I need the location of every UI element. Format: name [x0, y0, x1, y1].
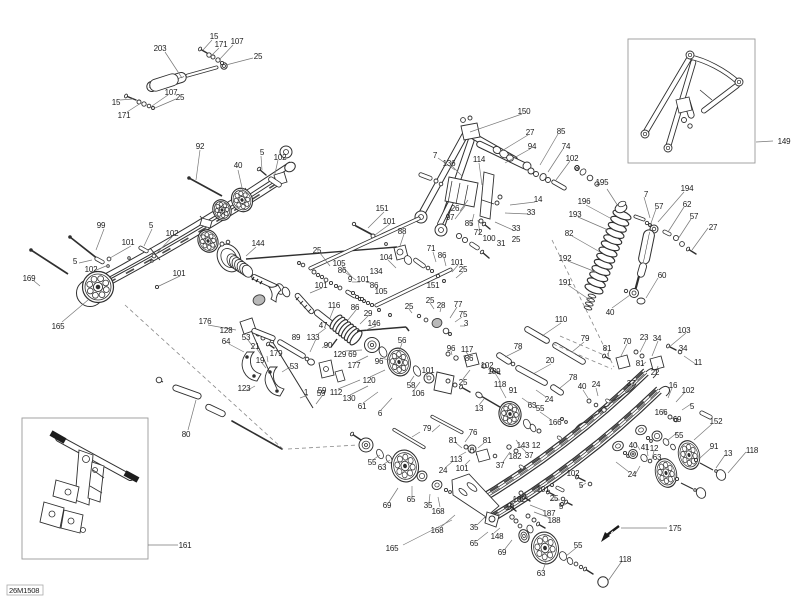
- svg-text:25: 25: [550, 494, 559, 503]
- svg-text:118: 118: [619, 555, 632, 564]
- svg-text:22: 22: [651, 368, 660, 377]
- svg-text:79: 79: [423, 424, 432, 433]
- svg-text:25: 25: [313, 246, 322, 255]
- svg-text:69: 69: [673, 415, 682, 424]
- svg-text:89: 89: [292, 333, 301, 342]
- svg-text:34: 34: [679, 344, 688, 353]
- svg-text:33: 33: [527, 208, 536, 217]
- svg-text:56: 56: [398, 336, 407, 345]
- svg-text:96: 96: [447, 344, 456, 353]
- svg-text:118: 118: [494, 380, 507, 389]
- svg-text:69: 69: [383, 501, 392, 510]
- svg-text:101: 101: [537, 485, 550, 494]
- svg-text:101: 101: [315, 281, 328, 290]
- svg-text:25: 25: [459, 265, 468, 274]
- svg-text:65: 65: [407, 495, 416, 504]
- svg-text:99: 99: [97, 221, 106, 230]
- svg-text:106: 106: [412, 389, 425, 398]
- svg-text:129 69: 129 69: [333, 350, 357, 359]
- svg-text:110: 110: [555, 315, 568, 324]
- svg-text:53: 53: [242, 333, 251, 342]
- svg-text:37: 37: [627, 379, 636, 388]
- svg-text:72: 72: [474, 228, 483, 237]
- svg-text:102: 102: [274, 153, 287, 162]
- svg-text:134: 134: [370, 267, 383, 276]
- svg-text:60: 60: [658, 271, 667, 280]
- svg-text:28: 28: [437, 301, 446, 310]
- svg-text:29: 29: [364, 309, 373, 318]
- svg-text:40: 40: [606, 308, 615, 317]
- svg-text:116: 116: [328, 301, 341, 310]
- svg-text:102: 102: [566, 154, 579, 163]
- svg-text:80: 80: [182, 430, 191, 439]
- svg-text:74: 74: [562, 142, 571, 151]
- svg-text:105: 105: [375, 287, 388, 296]
- svg-text:13: 13: [724, 449, 733, 458]
- svg-text:203: 203: [154, 44, 167, 53]
- svg-text:33: 33: [512, 224, 521, 233]
- svg-text:91: 91: [710, 442, 719, 451]
- svg-text:120: 120: [363, 376, 376, 385]
- svg-text:25: 25: [176, 93, 185, 102]
- svg-text:24: 24: [545, 395, 554, 404]
- svg-text:102: 102: [567, 469, 580, 478]
- svg-text:189: 189: [488, 367, 501, 376]
- svg-text:63: 63: [537, 569, 546, 578]
- svg-text:165: 165: [52, 322, 65, 331]
- svg-text:146: 146: [368, 319, 381, 328]
- svg-text:102: 102: [682, 386, 695, 395]
- svg-text:24: 24: [592, 380, 601, 389]
- svg-text:113: 113: [450, 455, 463, 464]
- svg-text:101: 101: [456, 464, 469, 473]
- svg-text:11: 11: [694, 358, 703, 367]
- svg-text:78: 78: [569, 373, 578, 382]
- svg-text:81: 81: [603, 344, 612, 353]
- svg-text:193: 193: [569, 210, 582, 219]
- svg-text:191: 191: [559, 278, 572, 287]
- svg-text:192: 192: [559, 254, 572, 263]
- svg-text:25: 25: [459, 378, 468, 387]
- svg-text:86: 86: [438, 251, 447, 260]
- svg-text:90: 90: [324, 341, 333, 350]
- svg-text:150: 150: [518, 107, 531, 116]
- svg-text:97: 97: [446, 213, 455, 222]
- svg-text:85: 85: [465, 219, 474, 228]
- svg-text:101: 101: [357, 275, 370, 284]
- svg-text:12: 12: [650, 444, 659, 453]
- svg-text:63: 63: [653, 453, 662, 462]
- svg-text:171: 171: [215, 40, 228, 49]
- svg-text:161: 161: [179, 541, 192, 550]
- svg-text:101: 101: [173, 269, 186, 278]
- svg-text:149: 149: [778, 137, 791, 146]
- svg-text:81: 81: [636, 359, 645, 368]
- svg-text:117: 117: [461, 345, 474, 354]
- svg-text:82: 82: [565, 229, 574, 238]
- svg-text:104: 104: [380, 253, 393, 262]
- svg-text:151: 151: [427, 281, 440, 290]
- svg-text:123: 123: [238, 384, 251, 393]
- svg-text:25: 25: [426, 296, 435, 305]
- svg-text:64: 64: [222, 337, 231, 346]
- svg-text:25: 25: [254, 52, 263, 61]
- svg-text:96: 96: [375, 357, 384, 366]
- svg-text:59: 59: [318, 386, 327, 395]
- svg-text:23: 23: [640, 333, 649, 342]
- svg-text:20: 20: [546, 356, 555, 365]
- svg-text:92: 92: [196, 142, 205, 151]
- svg-text:77: 77: [454, 300, 463, 309]
- svg-text:18: 18: [506, 503, 515, 512]
- svg-text:62: 62: [683, 200, 692, 209]
- svg-text:78: 78: [514, 342, 523, 351]
- svg-text:31: 31: [497, 239, 506, 248]
- svg-text:61: 61: [358, 402, 367, 411]
- svg-text:128: 128: [220, 326, 233, 335]
- svg-text:176: 176: [199, 317, 212, 326]
- svg-text:101: 101: [422, 366, 435, 375]
- svg-text:58: 58: [407, 381, 416, 390]
- svg-text:70: 70: [623, 337, 632, 346]
- svg-text:175: 175: [669, 524, 682, 533]
- svg-text:100: 100: [483, 234, 496, 243]
- svg-text:76: 76: [469, 428, 478, 437]
- svg-text:196: 196: [578, 197, 591, 206]
- svg-text:188: 188: [548, 516, 561, 525]
- svg-text:86: 86: [351, 303, 360, 312]
- svg-text:130: 130: [343, 394, 356, 403]
- svg-text:40: 40: [578, 382, 587, 391]
- svg-text:26: 26: [451, 204, 460, 213]
- svg-text:13: 13: [475, 404, 484, 413]
- svg-text:85: 85: [557, 127, 566, 136]
- svg-text:16: 16: [669, 381, 678, 390]
- svg-text:118: 118: [746, 446, 759, 455]
- svg-text:195: 195: [596, 178, 609, 187]
- svg-text:165: 165: [386, 544, 399, 553]
- svg-text:75: 75: [459, 310, 468, 319]
- svg-text:168: 168: [432, 507, 445, 516]
- svg-text:101: 101: [383, 217, 396, 226]
- svg-text:37: 37: [496, 461, 505, 470]
- svg-text:169: 169: [23, 274, 36, 283]
- svg-text:55: 55: [574, 541, 583, 550]
- svg-text:41: 41: [641, 443, 650, 452]
- svg-text:21: 21: [251, 342, 260, 351]
- svg-text:40: 40: [234, 161, 243, 170]
- svg-text:47: 47: [319, 321, 328, 330]
- svg-text:27: 27: [709, 223, 718, 232]
- svg-text:24: 24: [439, 466, 448, 475]
- svg-text:12: 12: [532, 441, 541, 450]
- svg-text:65: 65: [470, 539, 479, 548]
- svg-text:25: 25: [405, 302, 414, 311]
- svg-text:81: 81: [483, 436, 492, 445]
- svg-text:177: 177: [348, 361, 361, 370]
- svg-text:88: 88: [398, 227, 407, 236]
- svg-text:102: 102: [85, 265, 98, 274]
- svg-text:55: 55: [368, 458, 377, 467]
- svg-text:19: 19: [256, 356, 265, 365]
- svg-text:14: 14: [534, 195, 543, 204]
- svg-text:26M1508: 26M1508: [9, 586, 39, 595]
- svg-text:148: 148: [491, 532, 504, 541]
- svg-text:86: 86: [338, 266, 347, 275]
- svg-text:143: 143: [517, 441, 530, 450]
- svg-text:91: 91: [509, 386, 518, 395]
- svg-text:15: 15: [112, 98, 121, 107]
- svg-text:69: 69: [498, 548, 507, 557]
- svg-text:63: 63: [378, 463, 387, 472]
- svg-text:194: 194: [681, 184, 694, 193]
- svg-text:57: 57: [655, 202, 664, 211]
- svg-text:71: 71: [427, 244, 436, 253]
- svg-text:114: 114: [473, 155, 486, 164]
- svg-text:144: 144: [252, 239, 265, 248]
- svg-text:57: 57: [690, 212, 699, 221]
- svg-text:151: 151: [376, 204, 389, 213]
- svg-text:152: 152: [710, 417, 723, 426]
- svg-text:171: 171: [118, 111, 131, 120]
- svg-text:27: 27: [526, 128, 535, 137]
- svg-text:55: 55: [675, 431, 684, 440]
- svg-text:102: 102: [166, 229, 179, 238]
- svg-text:103: 103: [678, 326, 691, 335]
- svg-text:34: 34: [653, 334, 662, 343]
- svg-text:25: 25: [512, 235, 521, 244]
- svg-text:94: 94: [528, 142, 537, 151]
- svg-text:166: 166: [655, 408, 668, 417]
- svg-text:101: 101: [122, 238, 135, 247]
- svg-text:55: 55: [536, 404, 545, 413]
- svg-text:102: 102: [513, 495, 526, 504]
- svg-text:79: 79: [581, 334, 590, 343]
- svg-text:53: 53: [290, 362, 299, 371]
- svg-text:133: 133: [307, 333, 320, 342]
- svg-text:136: 136: [443, 159, 456, 168]
- svg-text:112: 112: [330, 388, 343, 397]
- svg-text:107: 107: [231, 37, 244, 46]
- svg-text:86: 86: [465, 354, 474, 363]
- svg-text:37: 37: [525, 451, 534, 460]
- svg-text:35: 35: [470, 523, 479, 532]
- svg-text:40: 40: [629, 441, 638, 450]
